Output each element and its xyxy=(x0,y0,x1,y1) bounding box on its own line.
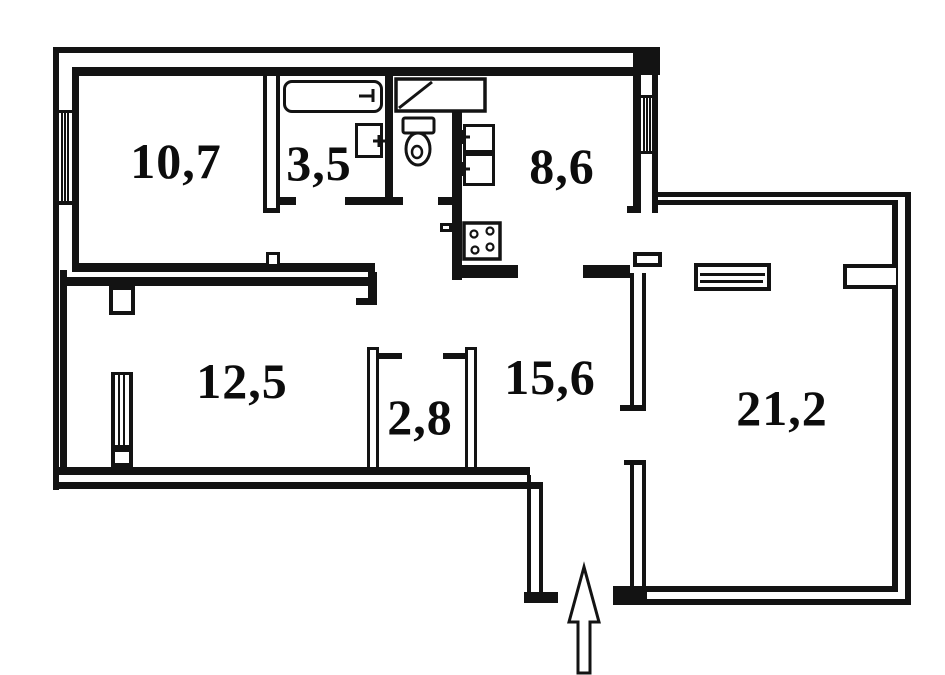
vent-window-cap xyxy=(111,372,133,375)
room-area-label: 21,2 xyxy=(736,383,828,433)
wall-hall-right-up-b xyxy=(642,273,646,410)
vent-window-hatch xyxy=(118,375,120,445)
wall-125-top xyxy=(60,277,375,286)
vent-window-side xyxy=(111,372,115,448)
wardrobe-shelf-icon xyxy=(694,263,771,291)
wall-inner-left-lower xyxy=(60,270,67,475)
door-jamb xyxy=(345,197,403,205)
wall-entry-left-foot xyxy=(524,592,558,603)
wall-hall-right-up-a xyxy=(630,273,634,410)
closet-wall-cap xyxy=(465,347,477,350)
room-area-label: 10,7 xyxy=(130,136,222,186)
wall-outer-top xyxy=(53,47,658,53)
window-hatch xyxy=(64,113,66,202)
window-sill xyxy=(641,151,652,154)
wall-pier xyxy=(111,448,133,467)
wall-ext-bottom-outer xyxy=(613,599,911,605)
stove-icon xyxy=(462,221,502,261)
window-hatch xyxy=(61,113,63,202)
wall-outer-left xyxy=(53,47,59,490)
closet-wall-right-b xyxy=(474,347,477,473)
room-area-label: 3,5 xyxy=(286,138,352,188)
wall-107-bottom xyxy=(72,263,375,272)
door-jamb xyxy=(624,460,646,465)
wall-entry-inner xyxy=(527,475,531,592)
closet-door-hook xyxy=(379,353,402,359)
wall-right-outer xyxy=(652,53,658,213)
floor-plan: 10,7 3,5 8,6 12,5 2,8 15,6 21,2 xyxy=(0,0,945,675)
wall-right-inner xyxy=(633,75,641,213)
wall-outer-bottom xyxy=(53,482,543,489)
wall-ext-top-inner xyxy=(652,200,898,205)
wall-107-bath-cap xyxy=(263,208,280,213)
closet-wall-left-b xyxy=(376,347,379,473)
wall-ext-right-inner xyxy=(892,200,898,592)
window-hatch xyxy=(649,98,651,152)
door-jamb xyxy=(620,405,646,411)
wall-ext-top-outer xyxy=(652,192,911,197)
wall-inner-top xyxy=(72,67,641,76)
shower-unit-icon xyxy=(394,77,487,113)
window-hatch xyxy=(67,113,69,202)
shelf-line xyxy=(700,273,765,276)
wall-kitchen-bottom xyxy=(452,265,518,278)
shelf-line xyxy=(700,280,763,283)
wall-pier-right xyxy=(843,264,896,289)
door-jamb xyxy=(356,298,377,305)
wall-107-bath-a xyxy=(263,75,267,213)
closet-door-hook xyxy=(443,353,465,359)
wall-right-foot xyxy=(627,206,641,213)
room-area-label: 15,6 xyxy=(504,352,596,402)
door-jamb-mark xyxy=(266,252,280,264)
vent-window-side xyxy=(129,372,133,448)
door-jamb xyxy=(278,197,296,205)
toilet-icon xyxy=(398,114,440,170)
room-area-label: 2,8 xyxy=(387,392,453,442)
wall-entry-outer xyxy=(539,482,543,592)
window-hatch xyxy=(643,98,645,152)
closet-wall-right-a xyxy=(465,347,468,473)
wall-hall-stub xyxy=(583,265,630,278)
wall-pier xyxy=(109,286,135,315)
bathtub-tap-icon xyxy=(355,86,379,106)
vent-window-hatch xyxy=(123,375,125,445)
room-area-label: 8,6 xyxy=(529,141,595,191)
wall-inner-left-upper xyxy=(72,67,79,272)
window-sill xyxy=(59,201,72,205)
wall-hall-right-low-a xyxy=(630,462,634,590)
closet-wall-cap xyxy=(367,347,379,350)
wall-ext-right-outer xyxy=(905,192,911,605)
room-area-label: 12,5 xyxy=(196,356,288,406)
wall-hall-right-low-b xyxy=(642,462,646,590)
entrance-arrow-icon xyxy=(560,558,610,675)
door-jamb xyxy=(438,197,452,205)
wall-107-bath-b xyxy=(276,75,280,213)
kitchen-tap-icon xyxy=(452,160,474,178)
closet-wall-left-a xyxy=(367,347,370,473)
wall-inner-bottom xyxy=(57,467,530,475)
window-hatch xyxy=(646,98,648,152)
pipe-riser xyxy=(440,223,452,232)
wall-ext-bottom-inner xyxy=(630,586,898,592)
sink-tap-icon xyxy=(370,132,390,150)
kitchen-tap-icon xyxy=(452,128,474,146)
wall-pier-top xyxy=(633,252,662,267)
